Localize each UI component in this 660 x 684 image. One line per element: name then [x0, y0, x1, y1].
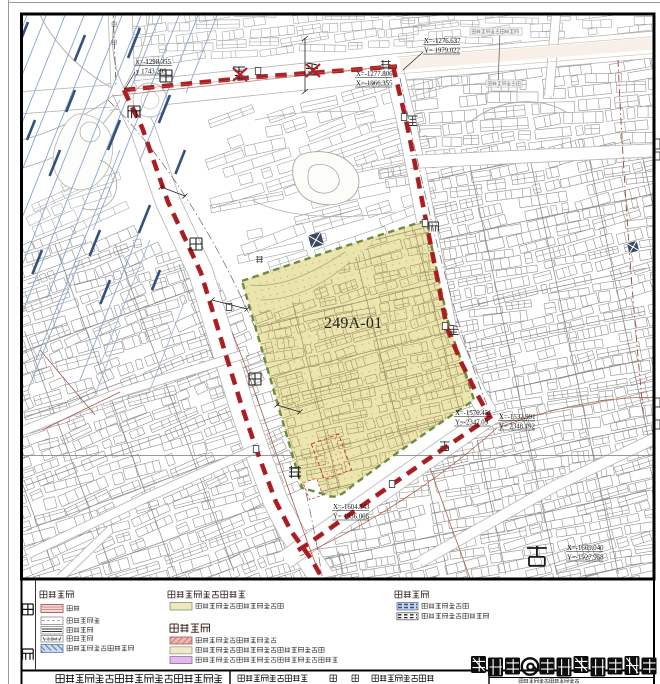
svg-text:Y= 1936.066: Y= 1936.066 — [333, 514, 370, 521]
svg-text:x=-1298.355: x=-1298.355 — [136, 59, 172, 66]
svg-text:X=-1966.355: X=-1966.355 — [356, 81, 393, 88]
svg-text:y 1743.299: y 1743.299 — [136, 69, 167, 76]
svg-text:249A-01: 249A-01 — [324, 315, 382, 332]
svg-text:X=-1669.040: X=-1669.040 — [567, 545, 604, 552]
svg-text:X=-1277.806: X=-1277.806 — [356, 71, 393, 78]
svg-text:Y= 1979.022: Y= 1979.022 — [424, 48, 461, 55]
svg-text:3.5M: 3.5M — [47, 637, 57, 642]
svg-text:Y=-1927.958: Y=-1927.958 — [567, 555, 604, 562]
svg-text:Y= 2348.192: Y= 2348.192 — [499, 424, 536, 431]
svg-text:X=-1532.991: X=-1532.991 — [499, 414, 536, 421]
svg-text:Y=-2347.09: Y=-2347.09 — [455, 420, 489, 427]
svg-text:X=-1276.637: X=-1276.637 — [424, 38, 461, 45]
svg-text:X=-1604.843: X=-1604.843 — [333, 504, 370, 511]
svg-text:X=-1570.451: X=-1570.451 — [455, 410, 492, 417]
